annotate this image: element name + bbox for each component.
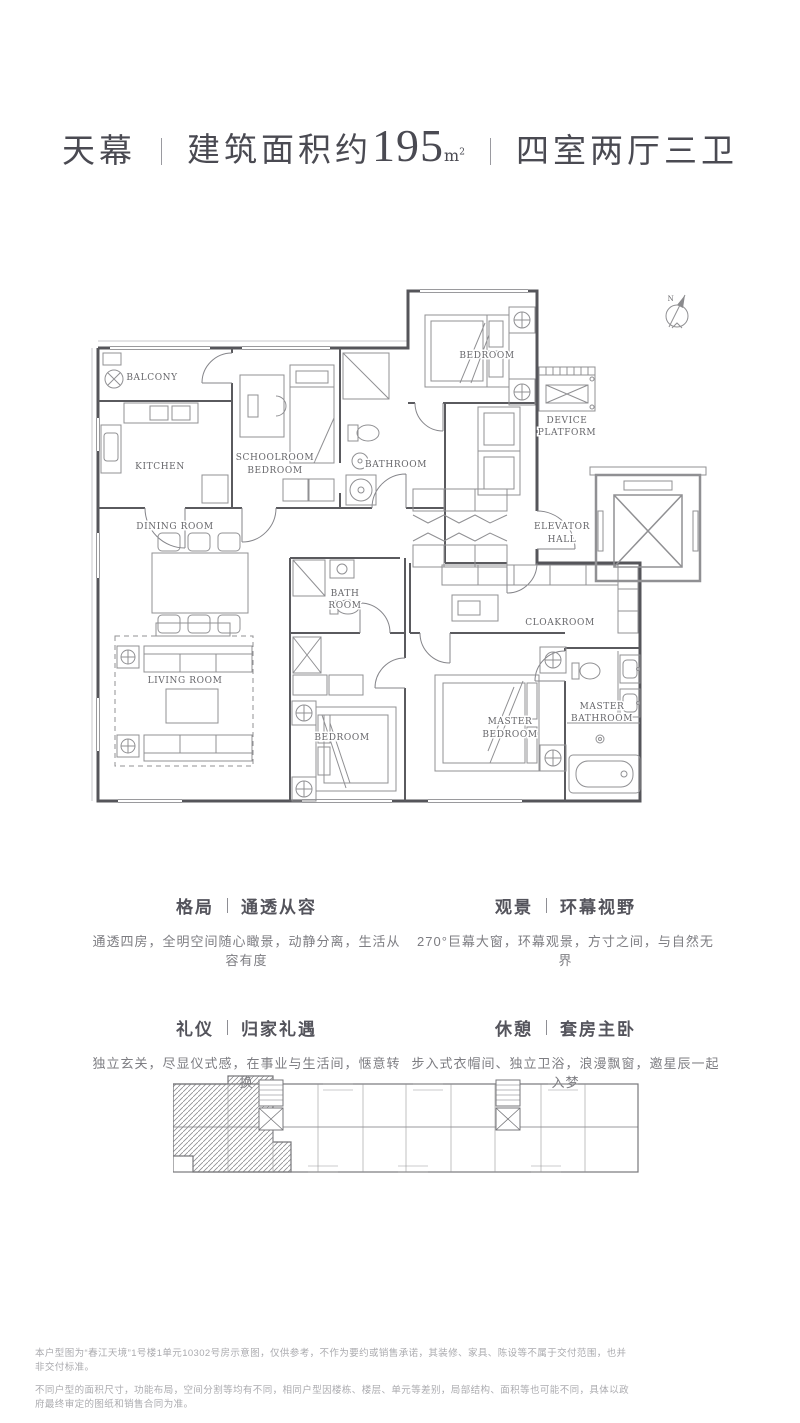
title-separator bbox=[490, 138, 491, 165]
floor-plan-drawing: N BALCONY KITCHEN SCHOOLROOM BEDROOM BAT… bbox=[90, 283, 710, 813]
disclaimer-line-1: 本户型图为“春江天境”1号楼1单元10302号房示意图，仅供参考，不作为要约或销… bbox=[35, 1347, 635, 1375]
room-label-masterbath-2: BATHROOM bbox=[571, 714, 633, 724]
room-label-masterbath-1: MASTER bbox=[580, 702, 625, 712]
page-title: 天幕 建筑面积约195m2 四室两厅三卫 bbox=[0, 116, 800, 186]
feature-desc: 通透四房，全明空间随心瞰景，动静分离，生活从容有度 bbox=[92, 931, 401, 969]
entry-wardrobes bbox=[413, 489, 507, 567]
feature-title: 通透从容 bbox=[241, 893, 317, 918]
room-label-schoolroom-1: SCHOOLROOM bbox=[236, 453, 314, 463]
bathroom-top-fixtures bbox=[343, 353, 389, 505]
kitchen-counter bbox=[101, 403, 228, 503]
room-label-cloakroom: CLOAKROOM bbox=[525, 618, 595, 628]
room-label-bedroom-bottom: BEDROOM bbox=[314, 733, 369, 743]
schoolroom-furniture bbox=[240, 365, 334, 501]
feature-desc: 270°巨幕大窗，环幕观景，方寸之间，与自然无界 bbox=[411, 931, 720, 969]
floor-plan: N BALCONY KITCHEN SCHOOLROOM BEDROOM BAT… bbox=[90, 283, 710, 813]
feature-tag: 观景 bbox=[495, 893, 533, 918]
master-bedroom-furniture bbox=[435, 647, 566, 771]
room-label-device-1: DEVICE bbox=[547, 416, 588, 426]
feature-tag: 格局 bbox=[176, 893, 214, 918]
title-area-unit: m2 bbox=[444, 146, 465, 165]
bedroom-top-furniture bbox=[425, 307, 535, 495]
room-label-bath-1: BATH bbox=[331, 589, 360, 599]
feature-layout: 格局通透从容 通透四房，全明空间随心瞰景，动静分离，生活从容有度 bbox=[92, 893, 401, 969]
room-label-device-2: PLATFORM bbox=[538, 428, 596, 438]
room-label-elevator-2: HALL bbox=[548, 535, 577, 545]
room-label-master-1: MASTER bbox=[488, 717, 533, 727]
floorplan-page: 天幕 建筑面积约195m2 四室两厅三卫 bbox=[0, 0, 800, 1423]
room-label-elevator-1: ELEVATOR bbox=[534, 522, 590, 532]
title-area: 建筑面积约195m2 bbox=[187, 116, 465, 186]
device-platform-equipment bbox=[539, 367, 595, 411]
title-room-count: 四室两厅三卫 bbox=[516, 121, 738, 181]
stair-core-1 bbox=[259, 1080, 283, 1130]
disclaimer: 本户型图为“春江天境”1号楼1单元10302号房示意图，仅供参考，不作为要约或销… bbox=[35, 1347, 635, 1421]
feature-tag: 礼仪 bbox=[176, 1015, 214, 1040]
feature-separator bbox=[546, 898, 547, 913]
title-separator bbox=[161, 138, 162, 165]
feature-separator bbox=[546, 1020, 547, 1035]
title-area-prefix: 建筑面积约 bbox=[187, 130, 372, 169]
feature-separator bbox=[227, 898, 228, 913]
title-product-name: 天幕 bbox=[62, 121, 136, 181]
bedroom-bottom-furniture bbox=[292, 637, 396, 801]
dining-table bbox=[152, 533, 248, 633]
room-label-master-2: BEDROOM bbox=[482, 730, 537, 740]
disclaimer-line-2: 不同户型的面积尺寸，功能布局，空间分割等均有不同，相同户型因楼栋、楼层、单元等差… bbox=[35, 1384, 635, 1412]
feature-title: 套房主卧 bbox=[560, 1015, 636, 1040]
key-plan-drawing bbox=[173, 1072, 640, 1186]
feature-separator bbox=[227, 1020, 228, 1035]
living-room-furniture bbox=[115, 623, 253, 766]
room-label-bath-2: ROOM bbox=[328, 601, 361, 611]
feature-title: 环幕视野 bbox=[560, 893, 636, 918]
room-label-dining: DINING ROOM bbox=[136, 522, 213, 532]
north-compass-icon: N bbox=[666, 295, 688, 328]
svg-text:N: N bbox=[668, 295, 675, 303]
feature-blocks: 格局通透从容 通透四房，全明空间随心瞰景，动静分离，生活从容有度 观景环幕视野 … bbox=[92, 893, 720, 1091]
title-area-number: 195 bbox=[372, 120, 444, 171]
feature-title: 归家礼遇 bbox=[241, 1015, 317, 1040]
room-label-bathroom: BATHROOM bbox=[365, 460, 427, 470]
building-key-plan bbox=[173, 1072, 640, 1186]
feature-view: 观景环幕视野 270°巨幕大窗，环幕观景，方寸之间，与自然无界 bbox=[411, 893, 720, 969]
feature-tag: 休憩 bbox=[495, 1015, 533, 1040]
room-label-living: LIVING ROOM bbox=[148, 676, 223, 686]
room-label-schoolroom-2: BEDROOM bbox=[247, 466, 302, 476]
room-label-kitchen: KITCHEN bbox=[135, 462, 185, 472]
balcony-washer bbox=[103, 353, 123, 388]
stair-core-2 bbox=[496, 1080, 520, 1130]
room-label-balcony: BALCONY bbox=[126, 373, 178, 383]
room-label-bedroom-top: BEDROOM bbox=[459, 351, 514, 361]
